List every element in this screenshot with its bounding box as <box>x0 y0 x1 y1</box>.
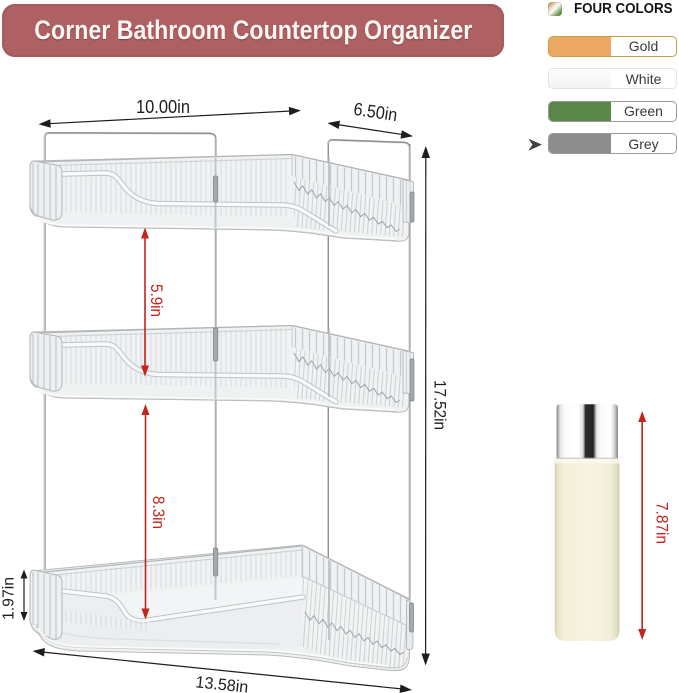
svg-text:5.9in: 5.9in <box>147 284 165 317</box>
svg-text:1.97in: 1.97in <box>1 577 18 620</box>
svg-text:17.52in: 17.52in <box>430 380 449 430</box>
svg-text:6.50in: 6.50in <box>352 99 398 125</box>
svg-text:7.87in: 7.87in <box>653 502 672 544</box>
svg-text:10.00in: 10.00in <box>136 97 190 117</box>
svg-text:13.58in: 13.58in <box>195 673 250 693</box>
svg-text:8.3in: 8.3in <box>149 496 167 529</box>
